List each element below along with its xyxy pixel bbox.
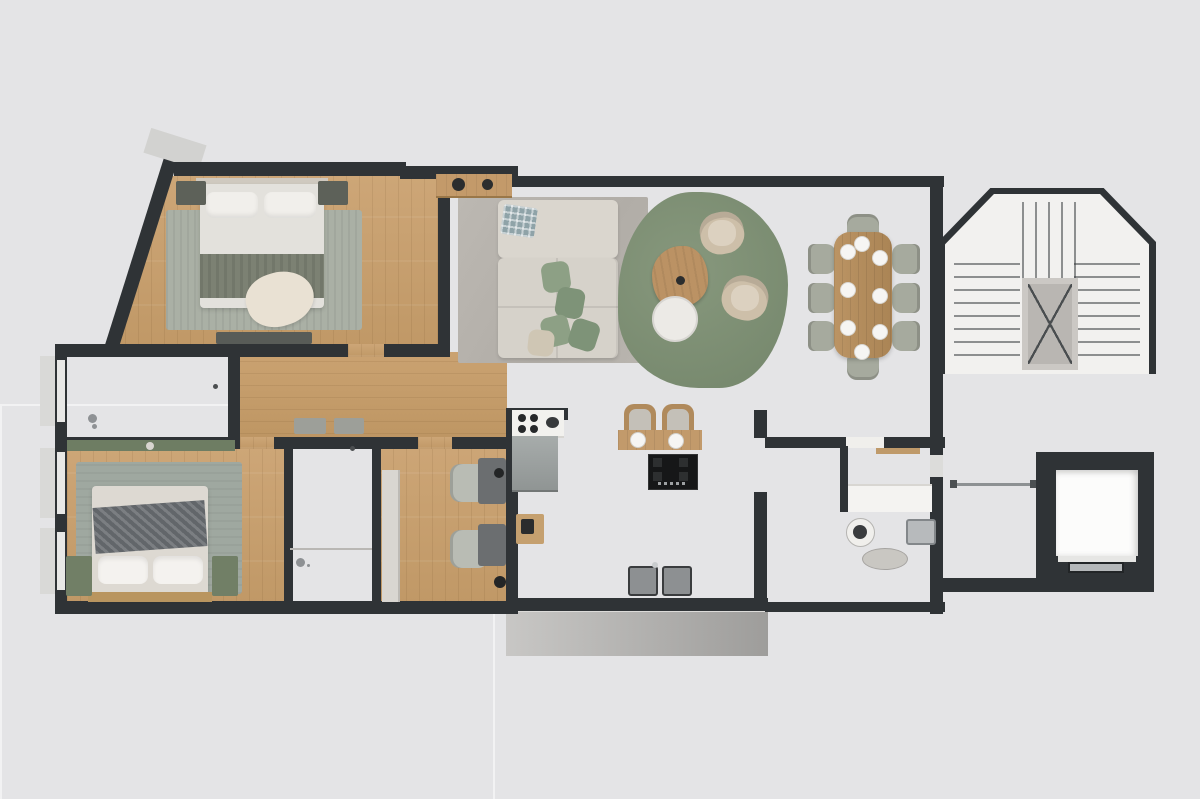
suite01-door-gap bbox=[348, 344, 384, 357]
burner-icon bbox=[518, 425, 526, 433]
armchair-seat bbox=[731, 285, 759, 311]
console-bowl bbox=[482, 179, 493, 190]
shower-head-icon bbox=[88, 414, 97, 423]
dining-chair bbox=[892, 244, 920, 274]
wall-suite01-top bbox=[174, 162, 406, 176]
suite02-pillow bbox=[98, 556, 148, 584]
dinner-plate bbox=[854, 236, 870, 252]
stair-block bbox=[938, 188, 1156, 374]
suite01-foot-bench bbox=[216, 332, 312, 344]
wall-banho2-office bbox=[372, 437, 381, 614]
elevator-cab bbox=[1056, 470, 1138, 556]
suite02-headboard bbox=[88, 592, 212, 602]
kitchen-sink bbox=[662, 566, 692, 596]
burner-icon bbox=[530, 414, 538, 422]
circulacao-bench bbox=[294, 418, 326, 434]
hall-door-cap bbox=[950, 480, 957, 488]
suite01-nightstand bbox=[176, 181, 206, 205]
wall-lavabo-left bbox=[840, 446, 848, 512]
suite02-nightstand bbox=[212, 556, 238, 596]
sofa-cushion-beige bbox=[527, 329, 556, 358]
cooktop-burner-square bbox=[679, 458, 688, 467]
wall-mid-divider bbox=[55, 344, 448, 357]
lavabo-shelf bbox=[876, 448, 920, 454]
dinner-plate bbox=[840, 320, 856, 336]
burner-icon bbox=[518, 414, 526, 422]
coffee-table-bowl bbox=[676, 276, 685, 285]
right-wall-window bbox=[930, 455, 943, 477]
entry-console bbox=[436, 174, 512, 198]
left-wall-window bbox=[57, 360, 65, 422]
office-lamp-icon bbox=[494, 468, 504, 478]
kitchen-sink bbox=[628, 566, 658, 596]
office-desk bbox=[478, 458, 506, 504]
corridor-bottom-wall bbox=[932, 578, 1040, 592]
laundry-basket bbox=[862, 548, 908, 570]
stair-treads-right bbox=[1074, 252, 1140, 356]
left-wall-window bbox=[57, 532, 65, 590]
espresso-machine-icon bbox=[521, 519, 534, 534]
suite01-nightstand bbox=[318, 181, 348, 205]
wall-suite02-banho2 bbox=[284, 437, 293, 614]
console-bowl bbox=[452, 178, 465, 191]
shower-head-icon bbox=[296, 558, 305, 567]
kitchen-cabinet bbox=[512, 436, 558, 492]
washing-machine-drum bbox=[853, 525, 867, 539]
faucet-icon bbox=[652, 562, 658, 568]
elevator-block bbox=[1036, 452, 1154, 592]
laje-slab bbox=[506, 610, 768, 656]
wall-kitchen-bottom bbox=[506, 598, 768, 611]
wall-kitchen-right-b bbox=[754, 492, 767, 610]
wall-living-top bbox=[506, 176, 944, 187]
suite02-wall-lamp bbox=[146, 442, 154, 450]
cooktop-burner-square bbox=[679, 472, 688, 481]
suite01-pillow bbox=[206, 192, 258, 218]
dinner-plate bbox=[840, 282, 856, 298]
lavabo-vanity bbox=[848, 484, 932, 512]
office-door-gap bbox=[418, 437, 452, 449]
bar-plate bbox=[630, 432, 646, 448]
dining-chair bbox=[808, 321, 836, 351]
suite02-pillow bbox=[153, 556, 203, 584]
shower-glass-line bbox=[290, 548, 372, 550]
burner-icon bbox=[530, 425, 538, 433]
wall-aserv-bottom bbox=[765, 602, 945, 612]
stair-treads-top bbox=[1022, 202, 1078, 284]
dinner-plate bbox=[872, 324, 888, 340]
lavabo-door-gap bbox=[846, 437, 884, 448]
cooktop-burner-square bbox=[653, 472, 662, 481]
bar-plate bbox=[668, 433, 684, 449]
hall-door-line bbox=[952, 483, 1036, 486]
elevator-door bbox=[1068, 562, 1124, 573]
dining-chair bbox=[808, 283, 836, 313]
faucet-icon bbox=[213, 384, 218, 389]
stair-landing-box bbox=[1022, 278, 1078, 370]
plaid-cushion bbox=[500, 204, 538, 238]
suite02-knit-throw bbox=[93, 500, 208, 554]
faucet-icon bbox=[350, 446, 355, 451]
dining-chair bbox=[892, 283, 920, 313]
cooktop-burner-square bbox=[653, 458, 662, 467]
wall-kitchen-right-a bbox=[754, 410, 767, 438]
wall-bottom-left-block bbox=[55, 601, 518, 614]
wall-closet-living bbox=[438, 176, 450, 357]
planter-rim-diagonal bbox=[0, 0, 66, 196]
suite02-door-gap bbox=[240, 437, 274, 449]
armchair-seat bbox=[708, 220, 736, 246]
suite02-nightstand bbox=[66, 556, 92, 596]
circulacao-floor bbox=[232, 352, 507, 446]
wall-banho1-circ bbox=[228, 352, 240, 448]
dinner-plate bbox=[854, 344, 870, 360]
floorplan-canvas: SUiTE 01 BANHO CIRCULAÇÃO SUiTE 02 BANHO… bbox=[0, 0, 1200, 799]
dining-chair bbox=[808, 244, 836, 274]
side-table-round bbox=[652, 296, 698, 342]
office-lamp-icon bbox=[494, 576, 506, 588]
left-wall-window bbox=[57, 452, 65, 514]
office-shelf bbox=[382, 470, 400, 602]
wall-right-outer bbox=[930, 182, 943, 614]
pan-icon bbox=[546, 417, 559, 428]
stair-treads-left bbox=[954, 252, 1020, 356]
dining-chair bbox=[892, 321, 920, 351]
office-desk bbox=[478, 524, 506, 566]
circulacao-bench bbox=[334, 418, 364, 434]
laundry-sink bbox=[906, 519, 936, 545]
dinner-plate bbox=[872, 288, 888, 304]
dinner-plate bbox=[872, 250, 888, 266]
cooktop-knobs bbox=[658, 482, 686, 485]
suite01-pillow bbox=[264, 192, 316, 218]
